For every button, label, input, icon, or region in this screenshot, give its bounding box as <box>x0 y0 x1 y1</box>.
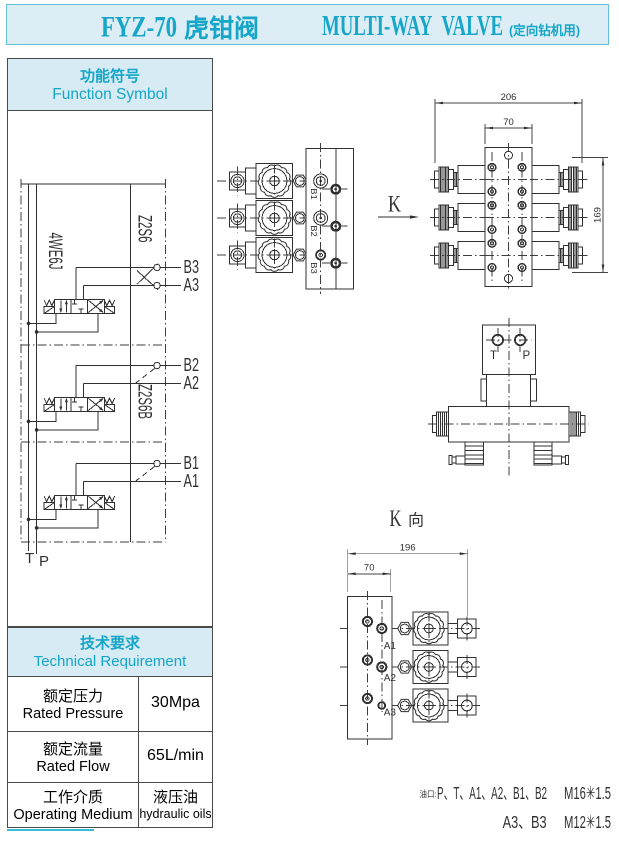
svg-text:P: P <box>39 553 49 570</box>
svg-text:FYZ-70: FYZ-70 <box>101 11 177 44</box>
svg-text:206: 206 <box>501 92 517 103</box>
svg-text:油口:: 油口: <box>420 789 437 799</box>
svg-text:169: 169 <box>593 207 604 223</box>
svg-text:T: T <box>25 550 34 567</box>
svg-text:K: K <box>390 506 402 531</box>
svg-text:A3: A3 <box>384 708 397 719</box>
svg-text:MULTI-WAY VALVE: MULTI-WAY VALVE <box>322 10 503 42</box>
svg-text:Z2S6: Z2S6 <box>134 215 155 243</box>
svg-text:M12✳1.5: M12✳1.5 <box>564 812 611 832</box>
svg-text:P、T、A1、A2、B1、B2: P、T、A1、A2、B1、B2 <box>437 783 547 803</box>
svg-text:A1: A1 <box>384 641 397 652</box>
svg-text:A1: A1 <box>184 470 200 491</box>
svg-text:K: K <box>388 192 401 217</box>
svg-text:向: 向 <box>408 512 424 530</box>
svg-text:M16✳1.5: M16✳1.5 <box>564 783 611 803</box>
svg-text:B2: B2 <box>309 225 318 237</box>
svg-text:P: P <box>523 350 531 362</box>
svg-text:A3: A3 <box>184 274 200 295</box>
svg-text:196: 196 <box>400 543 416 554</box>
svg-text:B3: B3 <box>309 262 318 274</box>
svg-text:虎钳阀: 虎钳阀 <box>184 15 259 43</box>
svg-text:70: 70 <box>503 117 514 128</box>
svg-text:70: 70 <box>364 563 375 574</box>
svg-text:Z2S6B: Z2S6B <box>134 384 155 419</box>
svg-text:A2: A2 <box>384 673 397 684</box>
svg-text:B1: B1 <box>309 188 318 200</box>
svg-text:A3、B3: A3、B3 <box>503 812 547 832</box>
svg-text:T: T <box>490 350 497 362</box>
svg-text:(定向钻机用): (定向钻机用) <box>509 23 580 38</box>
svg-text:A2: A2 <box>184 372 200 393</box>
svg-text:4WE6J: 4WE6J <box>44 233 65 270</box>
